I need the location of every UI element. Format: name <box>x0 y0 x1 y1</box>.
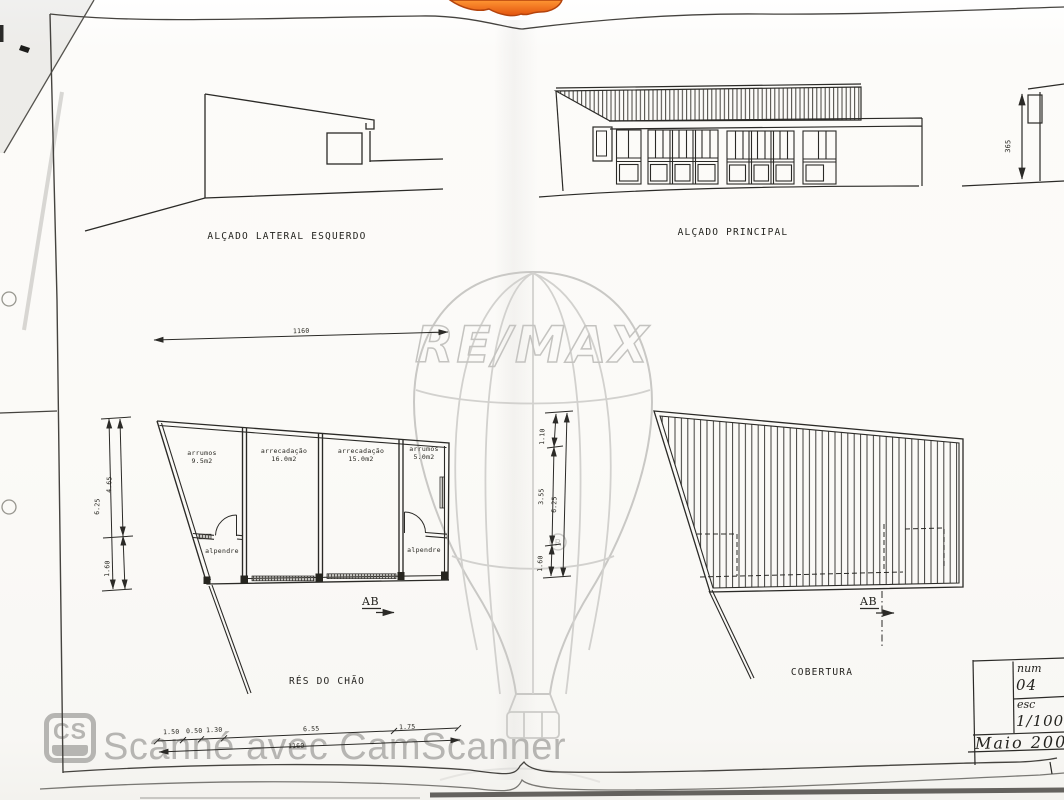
elevation-right-fragment <box>962 84 1064 186</box>
title-block-date: Maio 2003 <box>975 732 1064 753</box>
dim-label-bottom-5: 1.75 <box>399 723 416 732</box>
dim-label-elevation-height: 365 <box>1004 139 1012 153</box>
site-boundary-line-roof <box>709 590 754 679</box>
window-row <box>617 130 837 184</box>
dim-label-mid-total: 6.25 <box>550 496 559 513</box>
dim-label-plan-width: 1160 <box>293 327 310 335</box>
elevation-main-title: ALÇADO PRINCIPAL <box>678 227 789 238</box>
orange-sticker <box>450 0 562 16</box>
room-4-area: 5.0m2 <box>413 453 434 461</box>
door-right <box>405 512 426 533</box>
dim-label-bottom-4: 6.55 <box>303 725 320 734</box>
top-paper-edge <box>50 7 1064 29</box>
threshold-hatch-2 <box>327 574 396 579</box>
dim-label-mid-middle: 3.55 <box>537 488 546 505</box>
fold-crease-line <box>440 768 600 782</box>
dim-bottom-total <box>159 740 460 752</box>
bottom-dark-edge <box>430 790 1064 795</box>
title-block-num-label: num <box>1017 662 1042 675</box>
room-label-3: arrecadação15.0m2 <box>338 448 384 463</box>
room-label-4: arrumos5.0m2 <box>409 446 439 461</box>
site-boundary-line-plan <box>209 585 251 694</box>
dim-label-mid-upper: 1.10 <box>538 428 547 445</box>
room-1-area: 9.5m2 <box>191 457 212 465</box>
room-3-area: 15.0m2 <box>348 455 373 463</box>
dim-label-left-upper: 4.65 <box>105 476 114 493</box>
elevation-left-drawing <box>85 94 443 231</box>
roof-plan-title: COBERTURA <box>791 667 853 678</box>
fascia-hatched-band <box>556 87 861 121</box>
dim-label-bottom-3: 1.30 <box>206 726 223 735</box>
left-registration-line <box>0 411 57 413</box>
threshold-hatch-1 <box>252 576 314 581</box>
bottom-paper-edge <box>40 773 1064 791</box>
room-2-area: 16.0m2 <box>271 455 296 463</box>
title-block-esc-label: esc <box>1017 698 1035 711</box>
section-marker-plan: AB <box>362 595 379 608</box>
elevation-main-drawing <box>539 84 922 197</box>
porch-label-right: alpendre <box>407 547 441 555</box>
page-edges <box>0 0 1064 798</box>
dim-label-bottom-2: 0.50 <box>186 727 203 736</box>
dim-label-left-total: 6.25 <box>93 498 102 515</box>
room-label-2: arrecadação16.0m2 <box>261 448 307 463</box>
punch-hole-top <box>2 292 16 306</box>
ink-linework <box>0 0 1064 800</box>
dim-label-left-lower: 1.60 <box>103 560 112 577</box>
scanned-drawing-page: R RE/MAX Scanné avec CamScanner CS <box>0 0 1064 800</box>
dim-label-bottom-total: 1160 <box>288 742 305 751</box>
section-markers <box>362 609 894 614</box>
roof-hatch <box>660 416 959 588</box>
dim-label-bottom-1: 1.50 <box>163 728 180 737</box>
door-left <box>216 515 237 536</box>
roof-plan-drawing <box>654 411 963 679</box>
room-label-1: arrumos9.5m2 <box>187 450 217 465</box>
title-block-num-value: 04 <box>1016 676 1037 694</box>
title-block-esc-value: 1/100 <box>1016 712 1064 730</box>
door-sill-left <box>199 534 211 539</box>
dimension-lines <box>101 332 573 752</box>
elevation-left-title: ALÇADO LATERAL ESQUERDO <box>207 231 366 242</box>
dim-label-mid-lower: 1.60 <box>536 555 545 572</box>
punch-hole-bottom <box>2 500 16 514</box>
edge-dark-sliver <box>0 25 4 42</box>
section-marker-roof: AB <box>860 595 877 608</box>
floor-plan-title: RÉS DO CHÃO <box>289 676 365 687</box>
closet-strip <box>440 477 445 508</box>
porch-label-left: alpendre <box>205 548 239 556</box>
